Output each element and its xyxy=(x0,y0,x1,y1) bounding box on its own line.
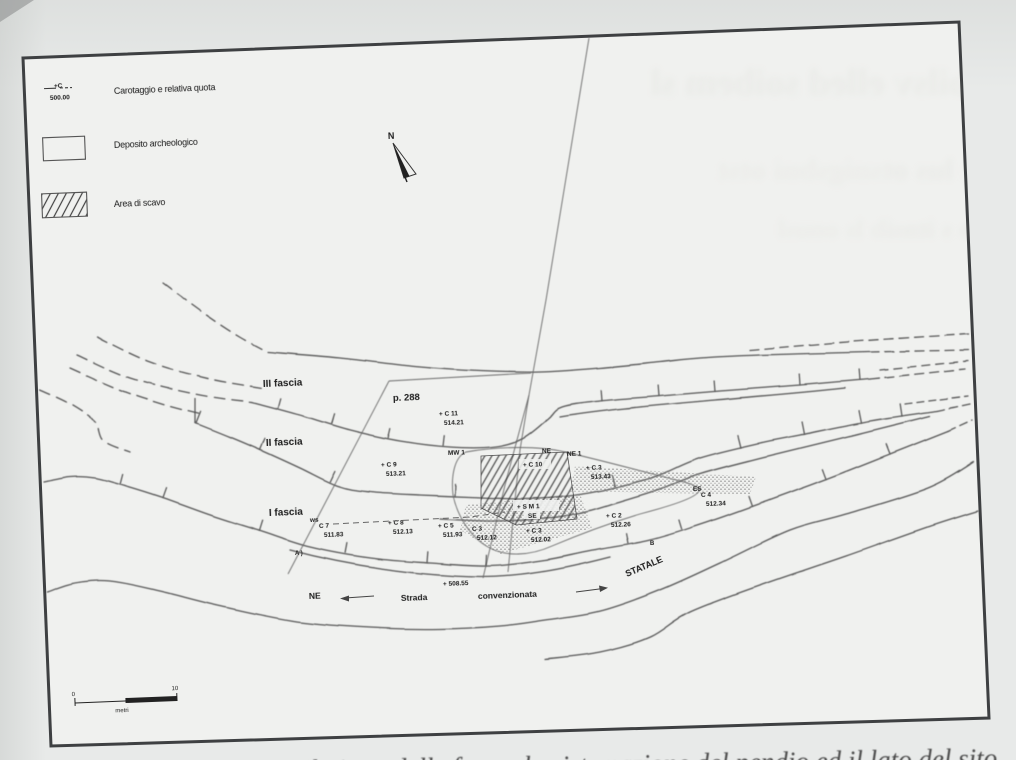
svg-text:III fascia: III fascia xyxy=(263,377,303,390)
svg-text:p. 288: p. 288 xyxy=(393,392,420,404)
svg-text:C 7: C 7 xyxy=(319,523,330,530)
svg-text:N: N xyxy=(388,131,395,141)
svg-text:513.21: 513.21 xyxy=(386,470,407,478)
svg-text:snoilsv elled soibem sl: snoilsv elled soibem sl xyxy=(650,62,1004,104)
svg-text:511.83: 511.83 xyxy=(324,531,344,539)
svg-text:10: 10 xyxy=(171,686,179,692)
svg-text:511.93: 511.93 xyxy=(443,531,463,539)
svg-text:+ C 10: + C 10 xyxy=(523,461,543,469)
svg-text:metri: metri xyxy=(115,708,129,715)
svg-text:514.21: 514.21 xyxy=(444,419,465,427)
svg-text:+ C 5: + C 5 xyxy=(438,522,454,530)
svg-text:I fascia: I fascia xyxy=(269,507,304,519)
svg-text:NE: NE xyxy=(309,591,322,601)
svg-text:A ): A ) xyxy=(295,551,303,557)
svg-text:+ C 9: + C 9 xyxy=(381,461,397,469)
svg-text:NE: NE xyxy=(542,448,552,455)
svg-text:+ 508.55: + 508.55 xyxy=(443,580,469,588)
svg-text:513.43: 513.43 xyxy=(591,473,612,481)
svg-text:+ C 3: + C 3 xyxy=(526,527,542,535)
svg-text:Area di scavo: Area di scavo xyxy=(114,197,166,209)
svg-text:+ S M 1: + S M 1 xyxy=(517,503,540,511)
svg-text:II fascia: II fascia xyxy=(266,437,304,449)
svg-text:500.00: 500.00 xyxy=(50,94,71,102)
svg-text:512.34: 512.34 xyxy=(706,500,727,508)
svg-text:C 3: C 3 xyxy=(472,526,483,533)
svg-text:SE: SE xyxy=(528,513,538,520)
svg-text:NE 1: NE 1 xyxy=(567,450,582,458)
svg-text:ES: ES xyxy=(693,486,703,493)
svg-text:512.12: 512.12 xyxy=(477,534,498,542)
svg-text:+C: +C xyxy=(54,83,63,90)
svg-text:512.13: 512.13 xyxy=(393,528,414,536)
svg-text:+ C 11: + C 11 xyxy=(439,410,459,418)
svg-text:Strada: Strada xyxy=(401,592,428,603)
svg-text:512.26: 512.26 xyxy=(611,521,632,529)
svg-text:512.02: 512.02 xyxy=(531,536,552,544)
svg-text:C 4: C 4 xyxy=(701,492,712,499)
svg-text:+ C 3: + C 3 xyxy=(586,464,602,472)
svg-text:ws: ws xyxy=(309,517,319,524)
svg-text:oliz lus otsnigsbni otst: oliz lus otsnigsbni otst xyxy=(717,152,1008,187)
svg-text:MW 1: MW 1 xyxy=(448,449,466,457)
svg-text:+ C 2: + C 2 xyxy=(606,512,622,520)
